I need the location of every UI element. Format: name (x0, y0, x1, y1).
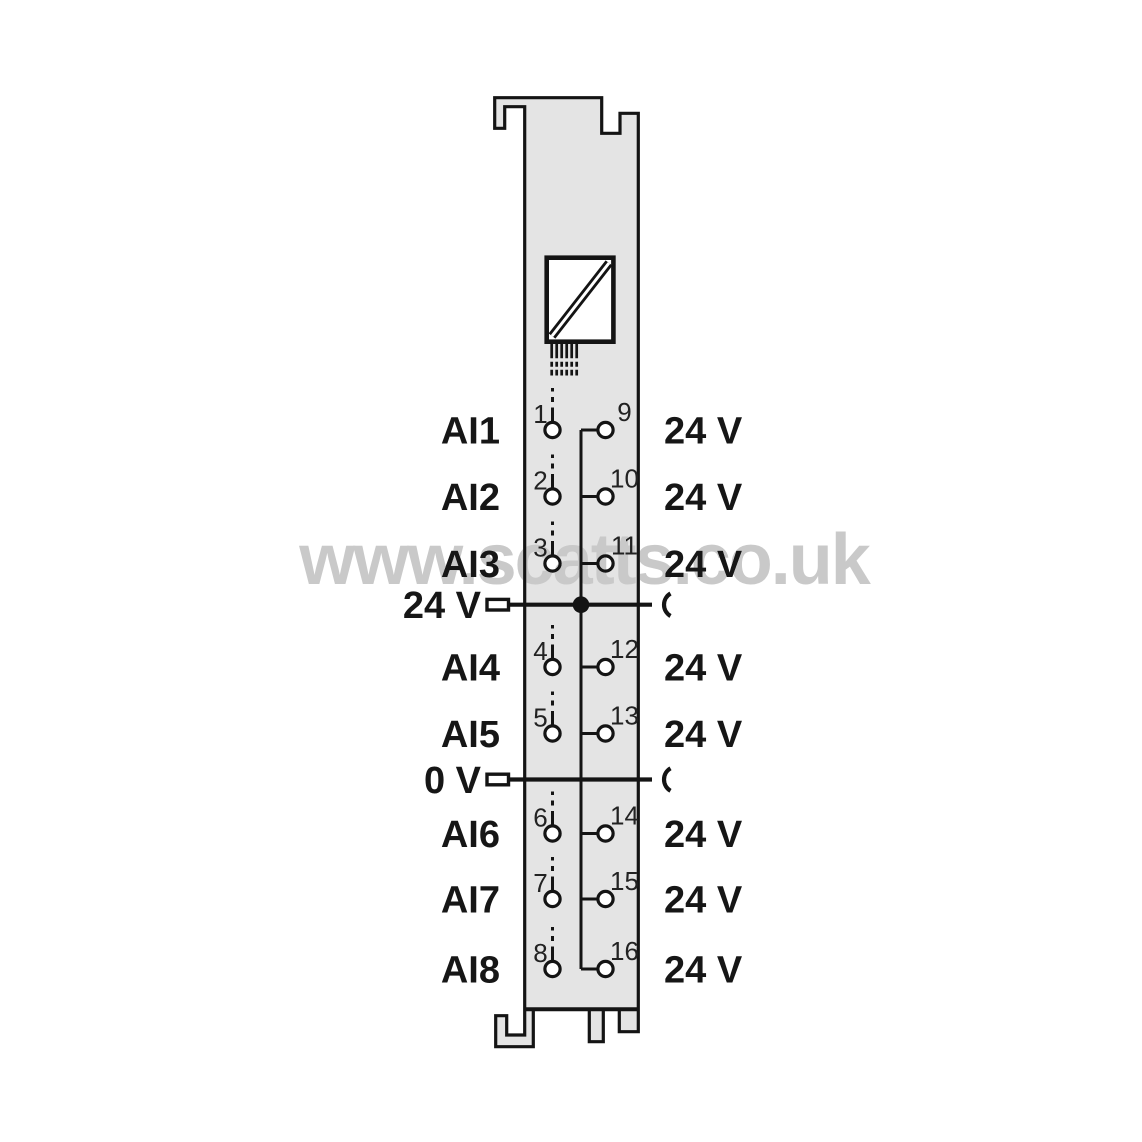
voltage-label: 24 V (664, 814, 743, 856)
pin-number-right: 11 (611, 531, 638, 561)
pin-number-right: 14 (610, 801, 639, 831)
voltage-label: 24 V (664, 714, 743, 756)
signal-label: AI3 (441, 544, 500, 586)
terminal-contact-right (598, 422, 613, 437)
pin-number-right: 13 (610, 701, 639, 731)
spring-contact-icon (664, 768, 670, 791)
pin-number-right: 10 (610, 464, 639, 494)
voltage-label: 24 V (664, 411, 743, 453)
signal-label: AI6 (441, 814, 500, 856)
supply-plug-icon (487, 599, 509, 610)
pin-number-left: 7 (533, 868, 547, 898)
signal-label: AI5 (441, 714, 500, 756)
pin-number-left: 3 (533, 533, 547, 563)
pin-number-left: 6 (533, 803, 547, 833)
wiring-diagram: 1 9 AI1 24 V 2 10 AI2 24 V 3 11 AI3 24 V (0, 0, 1142, 1142)
signal-label: AI1 (441, 411, 500, 453)
pin-number-right: 16 (610, 936, 639, 966)
bus-junction-dot (573, 596, 590, 613)
pin-number-left: 8 (533, 938, 547, 968)
pin-number-right: 9 (617, 397, 631, 427)
module-body (495, 98, 639, 1047)
pin-number-right: 15 (610, 866, 639, 896)
pin-number-right: 12 (610, 634, 639, 664)
pin-number-left: 5 (533, 703, 547, 733)
pin-number-left: 2 (533, 466, 547, 496)
supply-plug-icon (487, 774, 509, 785)
signal-label: AI4 (441, 648, 500, 690)
diagram-page: 1 9 AI1 24 V 2 10 AI2 24 V 3 11 AI3 24 V (0, 0, 1142, 1142)
pin-number-left: 1 (533, 399, 547, 429)
spring-contact-icon (664, 594, 670, 617)
voltage-label: 24 V (664, 648, 743, 690)
signal-label: AI2 (441, 477, 500, 519)
rail-label: 0 V (424, 760, 482, 802)
voltage-label: 24 V (664, 950, 743, 992)
pin-number-left: 4 (533, 636, 547, 666)
signal-label: AI8 (441, 950, 500, 992)
voltage-label: 24 V (664, 880, 743, 922)
voltage-label: 24 V (664, 544, 743, 586)
rail-label: 24 V (403, 585, 482, 627)
signal-label: AI7 (441, 880, 500, 922)
voltage-label: 24 V (664, 477, 743, 519)
